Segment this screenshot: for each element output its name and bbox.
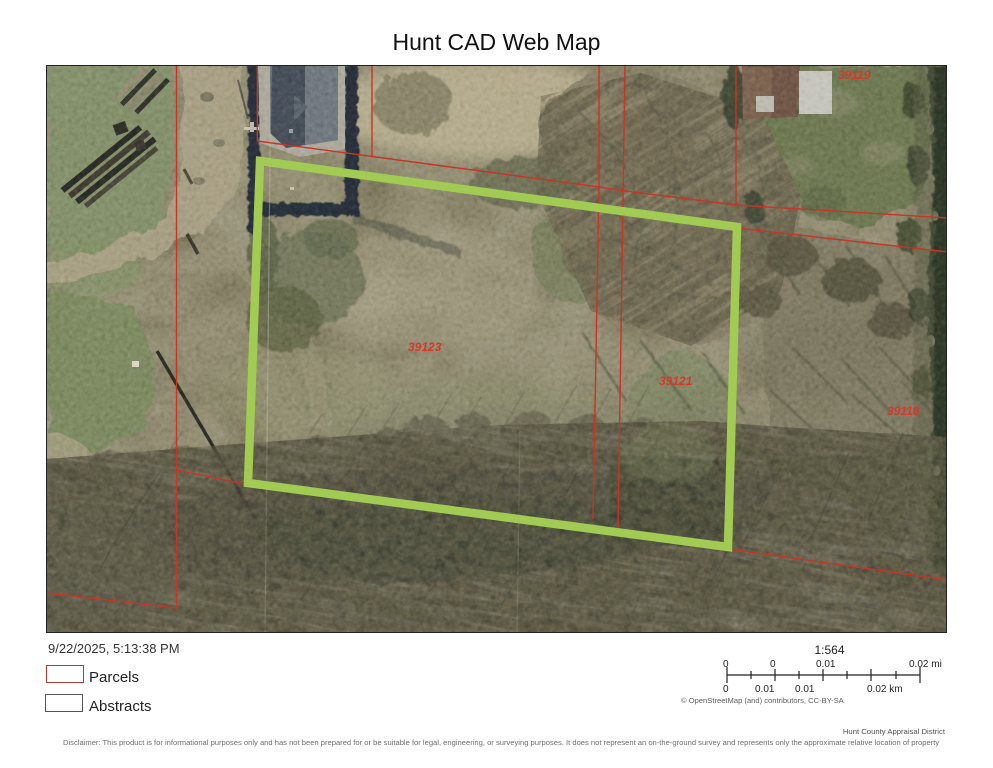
svg-text:39123: 39123	[408, 340, 442, 354]
svg-text:39119: 39119	[838, 68, 871, 82]
svg-text:39118: 39118	[887, 404, 920, 418]
svg-text:39121: 39121	[659, 374, 693, 388]
